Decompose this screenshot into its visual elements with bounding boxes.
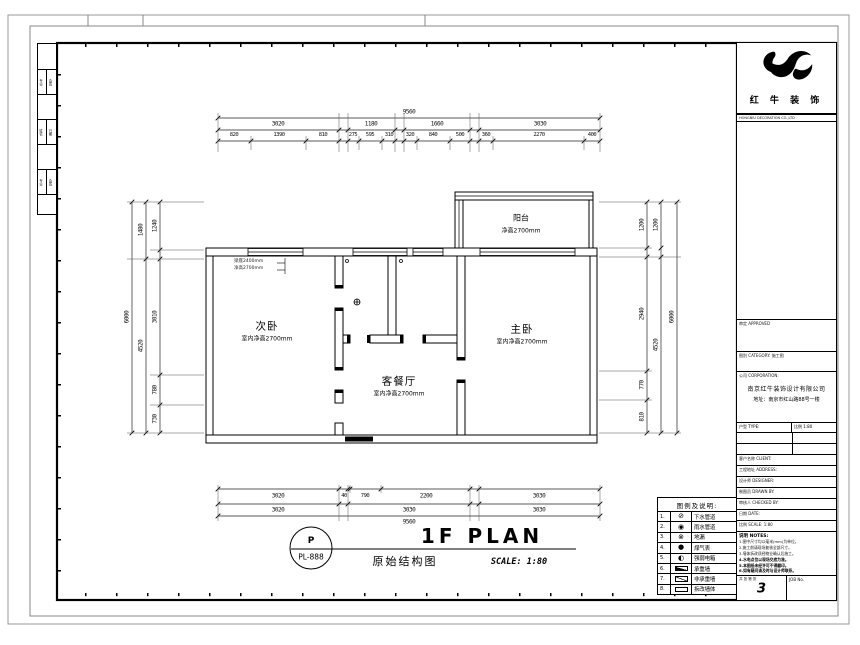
bull-logo-icon bbox=[758, 47, 816, 89]
dim-top-overall: 9560 bbox=[403, 109, 415, 116]
blank-box bbox=[737, 122, 836, 320]
drain-pipe-icon: ⊘ bbox=[671, 512, 692, 521]
dim: 790 bbox=[361, 493, 369, 499]
room-note-balcony: 净高2700mm bbox=[502, 226, 541, 235]
dim: 840 bbox=[429, 132, 437, 138]
dim: 3010 bbox=[152, 311, 159, 323]
scale-row: 比例 SCALE: 1:80 bbox=[737, 521, 836, 532]
dim: 275 bbox=[349, 132, 357, 138]
job-label: JOB No. bbox=[789, 577, 804, 582]
dim: 820 bbox=[230, 132, 238, 138]
dim: 3030 bbox=[533, 507, 545, 514]
legend-num: 3. bbox=[658, 533, 671, 542]
job-cell: JOB No. bbox=[787, 576, 836, 600]
dim: 1390 bbox=[273, 132, 284, 138]
plan-title: 1F PLAN bbox=[421, 524, 543, 548]
dim: 500 bbox=[456, 132, 464, 138]
legend-row: 2.◉雨水管道 bbox=[658, 521, 736, 531]
room-label-master-bedroom: 主卧 bbox=[511, 322, 534, 337]
drawing-sheet: { "sheet": { "brand": "红 牛 装 饰", "brand_… bbox=[0, 0, 860, 645]
notes-box: 说明 NOTES: 1.图中尺寸均以毫米(mm)为单位。 2.施工前请现场复核全… bbox=[737, 532, 836, 576]
note-line: 6.如有疑问请及时与设计师联系。 bbox=[737, 568, 836, 574]
strip-label: 专业 bbox=[40, 79, 45, 86]
legend-row: 3.⊗地漏 bbox=[658, 532, 736, 542]
client-row: 客户名称 CLIENT: bbox=[737, 455, 836, 466]
dim: 730 bbox=[152, 414, 159, 423]
dim: 360 bbox=[482, 132, 490, 138]
dim: 3030 bbox=[403, 507, 415, 514]
company-box: 公司 CORPORATION: 南京红牛装饰设计有限公司 地址：南京市红山路88… bbox=[737, 372, 836, 423]
dim: 1240 bbox=[152, 220, 159, 232]
rain-pipe-icon: ◉ bbox=[671, 522, 692, 531]
strip-label: 会签 bbox=[49, 79, 54, 86]
dim: 3030 bbox=[534, 121, 546, 128]
legend-row: 4.●煤气表 bbox=[658, 542, 736, 552]
approved-box: 审定 APPROVED bbox=[737, 320, 836, 352]
approved-label: 审定 APPROVED bbox=[739, 321, 770, 327]
partition-wall-icon bbox=[671, 574, 692, 583]
legend-header: 图例及说明: bbox=[658, 498, 736, 511]
strip-label: 日期 bbox=[49, 129, 54, 136]
dim: 3020 bbox=[272, 121, 284, 128]
drawn-row: 制图员 DRAWN BY: bbox=[737, 488, 836, 499]
legend-num: 5. bbox=[658, 554, 671, 563]
legend-num: 4. bbox=[658, 543, 671, 552]
legend-num: 2. bbox=[658, 522, 671, 531]
title-block: 红 牛 装 饰 HONGNIU DECORATION CO.,LTD 审定 AP… bbox=[737, 43, 836, 600]
beam-leader bbox=[277, 258, 285, 274]
scale-cell: 比例 1:80 bbox=[792, 423, 836, 432]
legend-label: 承重墙 bbox=[692, 564, 736, 573]
dim: 310 bbox=[385, 132, 393, 138]
notes-title: 说明 NOTES: bbox=[737, 532, 836, 539]
brand-name: 红 牛 装 饰 bbox=[737, 93, 836, 106]
drawing-name: 原始结构图 bbox=[373, 553, 438, 569]
dim: 1480 bbox=[138, 224, 145, 236]
fold-marks bbox=[88, 15, 425, 26]
date-row: 日期 DATE: bbox=[737, 510, 836, 521]
dim: 2200 bbox=[420, 493, 432, 500]
empty-row bbox=[737, 444, 836, 455]
strip-label: 姓名 bbox=[40, 129, 45, 136]
dim: 1200 bbox=[653, 219, 660, 231]
room-label-balcony: 阳台 bbox=[513, 213, 529, 224]
brand-sub: HONGNIU DECORATION CO.,LTD bbox=[739, 116, 795, 120]
room-label-secondary-bedroom: 次卧 bbox=[256, 319, 279, 334]
dim: 4520 bbox=[653, 339, 660, 351]
legend-label: 煤气表 bbox=[692, 543, 736, 552]
legend-num: 8. bbox=[658, 585, 671, 594]
dim: 400 bbox=[588, 132, 596, 138]
dim: 2270 bbox=[533, 132, 544, 138]
room-note-living-dining: 室内净高2700mm bbox=[374, 389, 425, 398]
type-scale-row: 户型 TYPE: 比例 1:80 bbox=[737, 423, 836, 433]
legend-row: 5.◐强弱电箱 bbox=[658, 553, 736, 563]
beam-note: 净高2700mm bbox=[234, 266, 263, 271]
gas-meter-icon: ● bbox=[671, 543, 692, 552]
company-name: 南京红牛装饰设计有限公司 bbox=[737, 384, 836, 393]
legend-table: 图例及说明: 1.⊘下水管道 2.◉雨水管道 3.⊗地漏 4.●煤气表 5.◐强… bbox=[657, 497, 737, 595]
logo-box: 红 牛 装 饰 bbox=[737, 43, 836, 115]
dim-bottom-overall: 9560 bbox=[403, 519, 415, 526]
brand-sub-row: HONGNIU DECORATION CO.,LTD bbox=[737, 115, 836, 122]
door-jambs bbox=[335, 285, 465, 442]
dim: 3030 bbox=[533, 493, 545, 500]
dim: 810 bbox=[319, 132, 327, 138]
type-cell: 户型 TYPE: bbox=[737, 423, 792, 432]
dim: 780 bbox=[152, 385, 159, 394]
legend-num: 7. bbox=[658, 574, 671, 583]
legend-label: 强弱电箱 bbox=[692, 554, 736, 563]
plan-walls bbox=[206, 248, 597, 443]
legend-label: 下水管道 bbox=[692, 512, 736, 521]
address-row: 工程地址 ADDRESS: bbox=[737, 466, 836, 477]
strip-label: 会签 bbox=[49, 179, 54, 186]
room-label-living-dining: 客餐厅 bbox=[382, 374, 417, 389]
bubble-number: PL-888 bbox=[298, 553, 324, 562]
beam-note: 梁底2400mm bbox=[234, 259, 263, 264]
sheet-number: 3 bbox=[757, 582, 766, 597]
bearing-wall-icon bbox=[671, 564, 692, 573]
legend-label: 雨水管道 bbox=[692, 522, 736, 531]
category-box: 图别 CATEGORY: 施工图 bbox=[737, 352, 836, 372]
legend-num: 6. bbox=[658, 564, 671, 573]
strip-label: 专业 bbox=[40, 179, 45, 186]
legend-label: 地漏 bbox=[692, 533, 736, 542]
legend-label: 非承重墙 bbox=[692, 574, 736, 583]
sheet-label: 共 张 第 张 bbox=[739, 577, 756, 582]
legend-row: 1.⊘下水管道 bbox=[658, 511, 736, 521]
room-note-secondary-bedroom: 室内净高2700mm bbox=[242, 334, 293, 343]
dim: 3020 bbox=[272, 493, 284, 500]
dim: 6000 bbox=[124, 311, 131, 323]
dim: 320 bbox=[406, 132, 414, 138]
bubble-phase: P bbox=[308, 536, 315, 546]
legend-label: 拆改墙体 bbox=[692, 585, 736, 594]
sheet-cell: 共 张 第 张 3 bbox=[737, 576, 787, 600]
category-label: 图别 CATEGORY: 施工图 bbox=[739, 353, 784, 359]
dim: 595 bbox=[366, 132, 374, 138]
designer-row: 设计师 DESIGNER: bbox=[737, 477, 836, 488]
dim: 1660 bbox=[431, 121, 443, 128]
dim: 810 bbox=[639, 412, 646, 421]
demolish-wall-icon bbox=[671, 585, 692, 594]
dim: 770 bbox=[639, 380, 646, 389]
sheet-number-row: 共 张 第 张 3 JOB No. bbox=[737, 576, 836, 600]
dim: 4520 bbox=[138, 340, 145, 352]
legend-row: 8.拆改墙体 bbox=[658, 584, 736, 594]
company-label: 公司 CORPORATION: bbox=[739, 373, 779, 379]
drawing-scale: SCALE: 1:80 bbox=[491, 557, 547, 567]
floor-drain-icon: ⊗ bbox=[671, 533, 692, 542]
dim: 2940 bbox=[639, 308, 646, 320]
legend-num: 1. bbox=[658, 512, 671, 521]
electric-box-icon: ◐ bbox=[671, 554, 692, 563]
signature-strip: 专业会签 姓名日期 专业会签 bbox=[37, 43, 57, 215]
dim: 6000 bbox=[669, 311, 676, 323]
legend-row: 7.非承重墙 bbox=[658, 573, 736, 583]
company-address: 地址：南京市红山路88号一楼 bbox=[737, 396, 836, 403]
empty-row bbox=[737, 433, 836, 444]
legend-row: 6.承重墙 bbox=[658, 563, 736, 573]
dim: 1200 bbox=[639, 219, 646, 231]
dim: 1180 bbox=[365, 121, 377, 128]
checked-row: 审核人 CHECKED BY: bbox=[737, 499, 836, 510]
dim: 3020 bbox=[272, 507, 284, 514]
room-note-master-bedroom: 室内净高2700mm bbox=[497, 337, 548, 346]
dim: 40 bbox=[341, 493, 347, 499]
